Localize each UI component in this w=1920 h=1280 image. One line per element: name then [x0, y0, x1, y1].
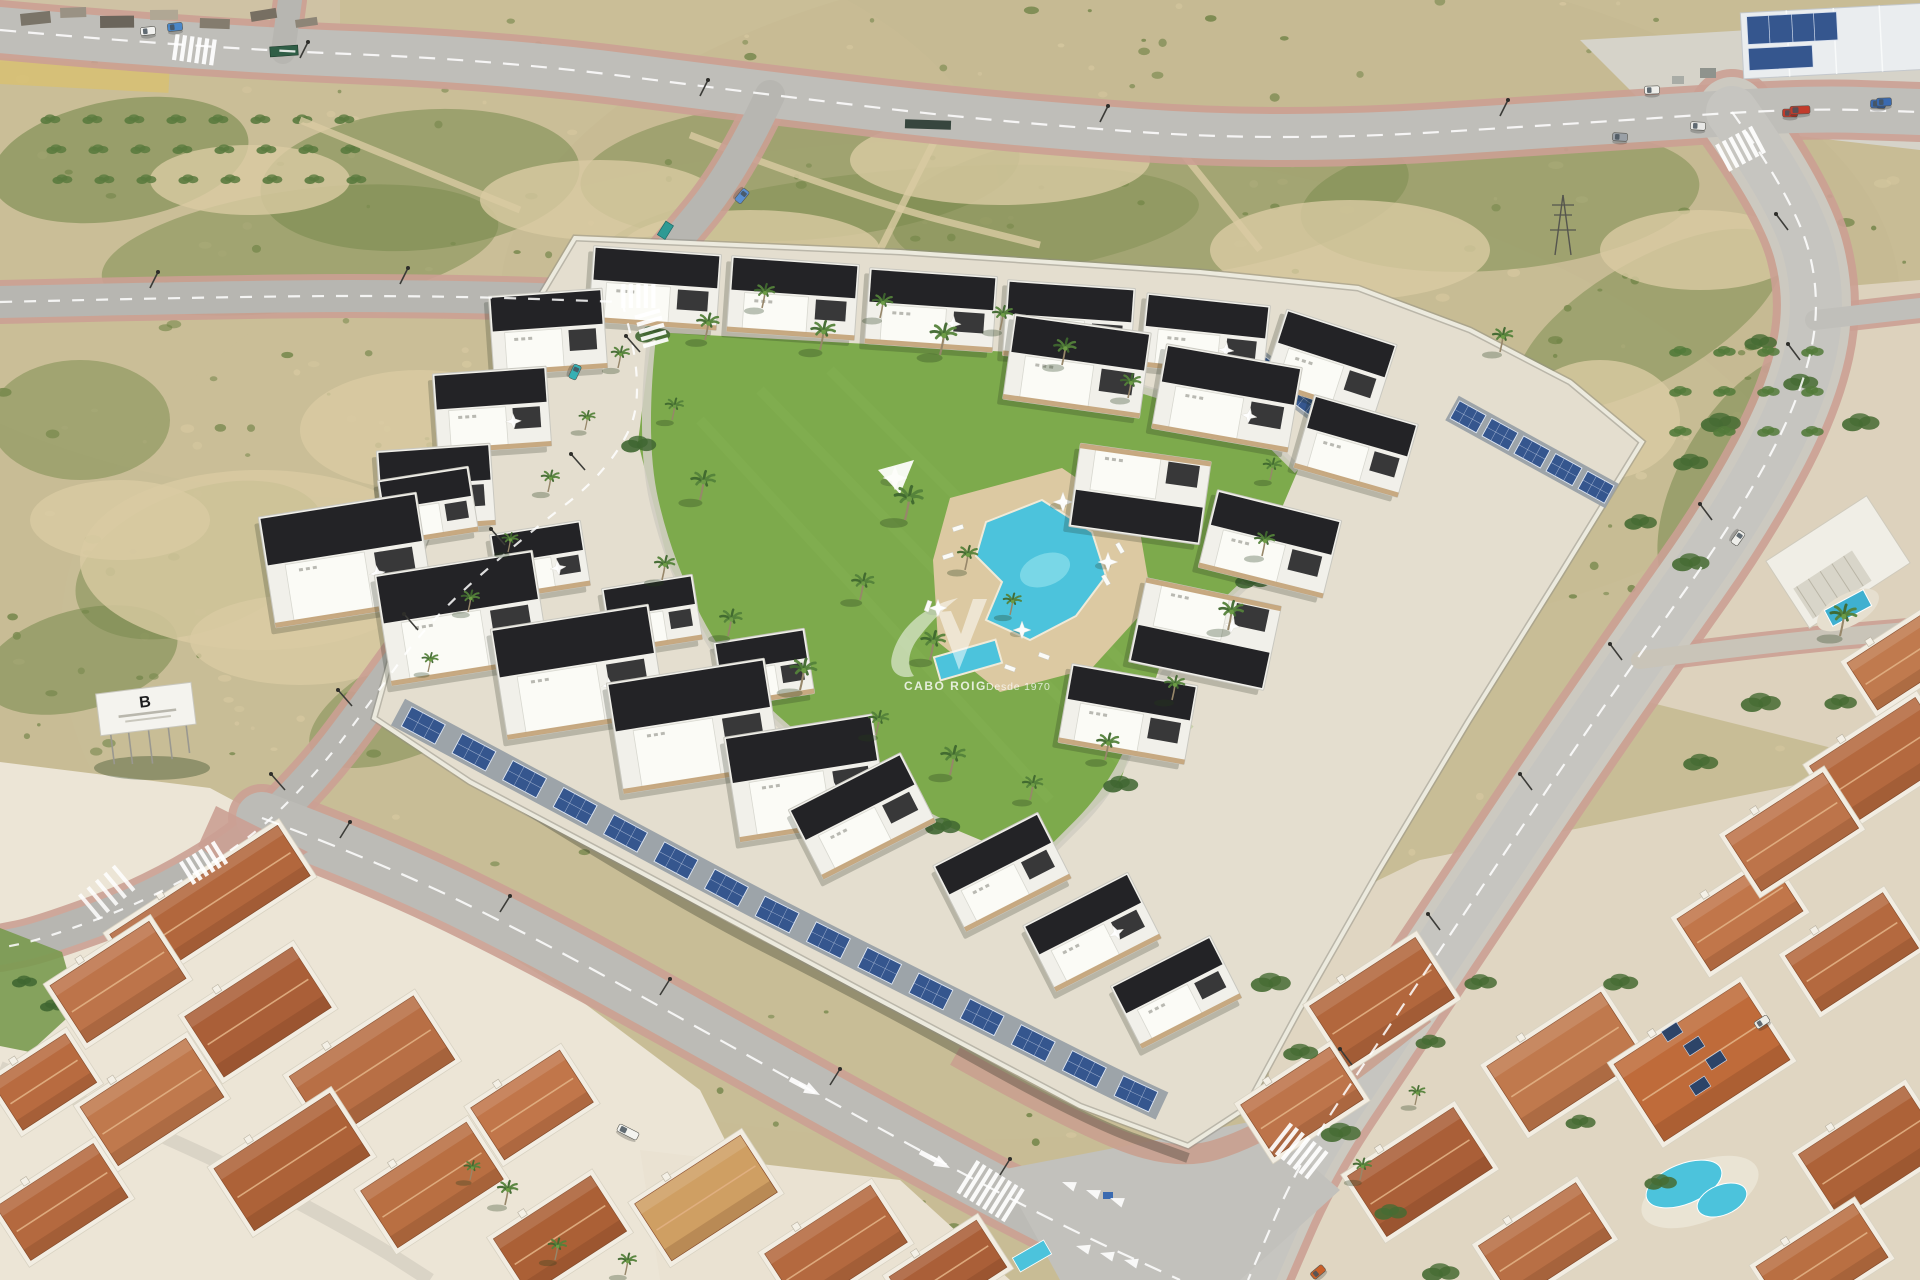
watermark-tagline: Desde 1970: [986, 681, 1051, 693]
aerial-render-canvas: B CABO ROIG Desde 1970: [0, 0, 1920, 1280]
billboard-logo-letter: B: [138, 693, 152, 711]
road-sign: [1103, 1192, 1113, 1199]
townhouse: [859, 267, 997, 358]
car: [1876, 98, 1891, 110]
car: [1612, 133, 1628, 145]
watermark-brand: CABO ROIG: [904, 679, 987, 693]
car: [1644, 86, 1659, 98]
car: [1690, 122, 1706, 134]
car: [1790, 106, 1810, 118]
noise-barrier: [905, 119, 951, 130]
townhouse: [997, 313, 1151, 424]
townhouse: [721, 255, 859, 346]
aerial-photo: B CABO ROIG Desde 1970: [0, 0, 1920, 1280]
townhouse: [1063, 443, 1211, 551]
warehouse: [1740, 3, 1920, 79]
